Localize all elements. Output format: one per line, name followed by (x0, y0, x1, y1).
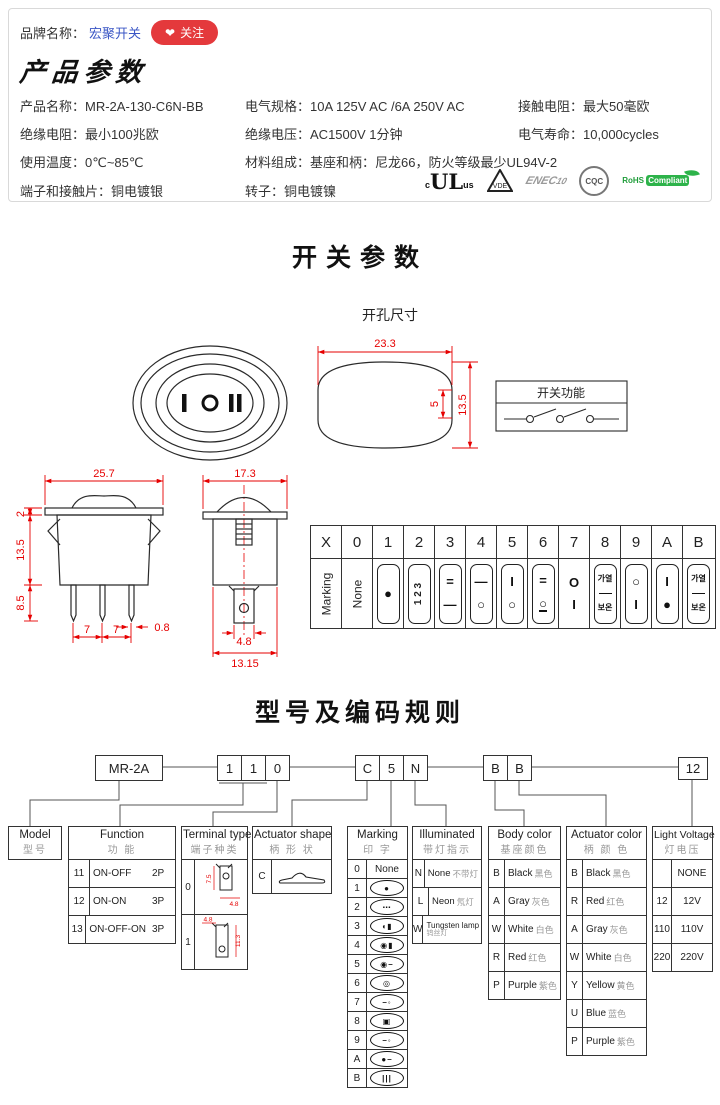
coding-rules-title: 型号及编码规则 (0, 693, 720, 729)
svg-text:7.5: 7.5 (206, 874, 213, 883)
param-electrical-rating: 电气规格：10A 125V AC /6A 250V AC (245, 96, 465, 115)
svg-text:17.3: 17.3 (234, 468, 255, 480)
svg-text:5: 5 (429, 401, 441, 407)
marking-icon-1: ● (373, 559, 404, 628)
table-actuator-color: Actuator color柄 颜 色 BBlack黑色 RRed红色 AGra… (566, 826, 647, 1056)
body-color-row: PPurple紫色 (489, 972, 560, 999)
param-insulation-resistance: 绝缘电阻：最小100兆欧 (20, 124, 159, 143)
svg-text:2: 2 (15, 511, 27, 517)
svg-text:4.8: 4.8 (236, 636, 251, 648)
actuator-shape-row: C (253, 860, 331, 893)
marking-icon-3: =— (435, 559, 466, 628)
actuator-color-row: WWhite白色 (567, 944, 646, 972)
terminal-drawing-0: 7.5 4.8 (198, 862, 244, 912)
brand-row: 品牌名称： 宏聚开关 ❤ 关注 (20, 20, 218, 45)
marking-icon-2: 1 2 3 (404, 559, 435, 628)
svg-text:7: 7 (113, 624, 119, 636)
code-box-colors: BB (483, 755, 532, 781)
marking-row: 1● (348, 879, 407, 898)
marking-code-table: X0 12 34 56 78 9A B Marking None ● 1 2 3… (310, 525, 716, 629)
svg-text:0.8: 0.8 (154, 622, 169, 634)
enec-cert-icon: ENEC10 (524, 175, 568, 187)
follow-button[interactable]: ❤ 关注 (151, 20, 218, 45)
table-function: Function功 能 11ON-OFF2P 12ON-ON3P 13ON-OF… (68, 826, 176, 944)
param-rotor-plating: 转子：铜电镀镍 (245, 181, 336, 200)
svg-text:13.5: 13.5 (457, 394, 469, 415)
marking-icon-B: 가열보온 (683, 559, 714, 628)
svg-text:4.8: 4.8 (229, 901, 238, 908)
marking-icon-6: =○ (528, 559, 559, 628)
illuminated-row: LNeon氖灯 (413, 888, 481, 916)
marking-icon-8: 가열보온 (590, 559, 621, 628)
certification-logos: cULus VDE ENEC10 CQC RoHS Compliant (425, 166, 689, 196)
marking-icon-9: ○I (621, 559, 652, 628)
terminal-row: 1 4.8 11.3 (182, 915, 247, 969)
code-box-model: MR-2A (95, 755, 163, 781)
marking-row: 6◎ (348, 974, 407, 993)
rocker-profile-icon (276, 866, 328, 888)
svg-text:开关功能: 开关功能 (537, 386, 585, 400)
svg-text:23.3: 23.3 (374, 338, 395, 350)
svg-text:开孔尺寸: 开孔尺寸 (362, 307, 418, 323)
marking-icon-4: —○ (466, 559, 497, 628)
table-actuator-shape: Actuator shape柄 形 状 C (252, 826, 332, 894)
face-marks (182, 394, 242, 412)
terminal-drawing-1: 4.8 11.3 (198, 917, 244, 967)
rohs-cert-icon: RoHS Compliant (622, 177, 689, 185)
vde-cert-icon: VDE (487, 169, 513, 193)
actuator-color-row: YYellow黄色 (567, 972, 646, 1000)
table-light-voltage: Light Voltage灯电压 NONE 1212V 110110V 2202… (652, 826, 713, 972)
cqc-cert-icon: CQC (579, 166, 609, 196)
hole-dimension-drawing: 开孔尺寸 23.3 13.5 5 (0, 300, 720, 465)
actuator-color-row: UBlue蓝色 (567, 1000, 646, 1028)
product-page: 品牌名称： 宏聚开关 ❤ 关注 产品参数 产品名称：MR-2A-130-C6N-… (0, 0, 720, 1105)
marking-row: 0None (348, 860, 407, 879)
body-color-row: AGray灰色 (489, 888, 560, 916)
switch-outline-drawing: 25.7 2 13.5 8.5 7 7 0.8 17.3 (0, 465, 310, 677)
svg-text:25.7: 25.7 (93, 468, 114, 480)
param-electrical-life: 电气寿命：10,000cycles (518, 124, 659, 143)
table-terminal-type: Terminal type端子种类 0 7.5 4.8 1 (181, 826, 248, 970)
brand-label: 品牌名称： (20, 23, 85, 42)
marking-row: B||| (348, 1069, 407, 1087)
marking-icon-5: I○ (497, 559, 528, 628)
brand-name-link[interactable]: 宏聚开关 (89, 23, 141, 42)
table-marking: Marking印 字 0None 1● 2⋯ 3◖▮ 4◉▮ 5◉– 6◎ 7–… (347, 826, 408, 1088)
body-color-row: RRed红色 (489, 944, 560, 972)
marking-row: 5◉– (348, 955, 407, 974)
marking-row: 8▣ (348, 1012, 407, 1031)
marking-row: 3◖▮ (348, 917, 407, 936)
actuator-color-row: AGray灰色 (567, 916, 646, 944)
param-insulation-voltage: 绝缘电压：AC1500V 1分钟 (245, 124, 403, 143)
svg-text:11.3: 11.3 (235, 935, 242, 948)
marking-row: A●– (348, 1050, 407, 1069)
marking-row: 2⋯ (348, 898, 407, 917)
switch-params-title: 开关参数 (0, 238, 720, 274)
illuminated-row: WTungsten lamp钨丝灯 (413, 916, 481, 943)
marking-icon-A: I● (652, 559, 683, 628)
svg-text:7: 7 (84, 624, 90, 636)
light-voltage-row: 1212V (653, 888, 712, 916)
marking-icon-7: OI (559, 559, 590, 628)
actuator-color-row: BBlack黑色 (567, 860, 646, 888)
heart-icon: ❤ (165, 26, 175, 40)
marking-row: 9–◦ (348, 1031, 407, 1050)
function-row: 13ON-OFF-ON3P (69, 916, 175, 943)
svg-text:8.5: 8.5 (15, 595, 27, 610)
param-operating-temperature: 使用温度：0℃~85℃ (20, 152, 144, 171)
light-voltage-row: 110110V (653, 916, 712, 944)
marking-row: 4◉▮ (348, 936, 407, 955)
ul-cert-icon: cULus (425, 173, 474, 190)
function-row: 12ON-ON3P (69, 888, 175, 916)
table-illuminated: Illuminated带灯指示 NNone不带灯 LNeon氖灯 WTungst… (412, 826, 482, 944)
terminal-row: 0 7.5 4.8 (182, 860, 247, 915)
actuator-color-row: RRed红色 (567, 888, 646, 916)
param-contact-resistance: 接触电阻：最大50毫欧 (518, 96, 649, 115)
svg-text:4.8: 4.8 (203, 917, 212, 924)
product-params-title: 产品参数 (18, 52, 150, 89)
code-box-shape-marking-illum: C5N (355, 755, 428, 781)
light-voltage-row: 220220V (653, 944, 712, 971)
code-box-function-terminal: 110 (217, 755, 290, 781)
svg-text:VDE: VDE (492, 183, 507, 190)
table-model: Model型号 (8, 826, 62, 860)
body-color-row: BBlack黑色 (489, 860, 560, 888)
actuator-color-row: PPurple紫色 (567, 1028, 646, 1055)
param-terminal-plating: 端子和接触片：铜电镀银 (20, 181, 163, 200)
switch-function-box: 开关功能 (496, 381, 627, 431)
body-color-row: WWhite白色 (489, 916, 560, 944)
svg-text:13.15: 13.15 (231, 658, 259, 670)
follow-label: 关注 (180, 24, 204, 41)
marking-row: 7–◦ (348, 993, 407, 1012)
function-row: 11ON-OFF2P (69, 860, 175, 888)
table-body-color: Body color基座颜色 BBlack黑色 AGray灰色 WWhite白色… (488, 826, 561, 1000)
light-voltage-row: NONE (653, 860, 712, 888)
code-box-voltage: 12 (678, 757, 708, 780)
illuminated-row: NNone不带灯 (413, 860, 481, 888)
param-product-name: 产品名称：MR-2A-130-C6N-BB (20, 96, 204, 115)
svg-text:13.5: 13.5 (15, 539, 27, 560)
